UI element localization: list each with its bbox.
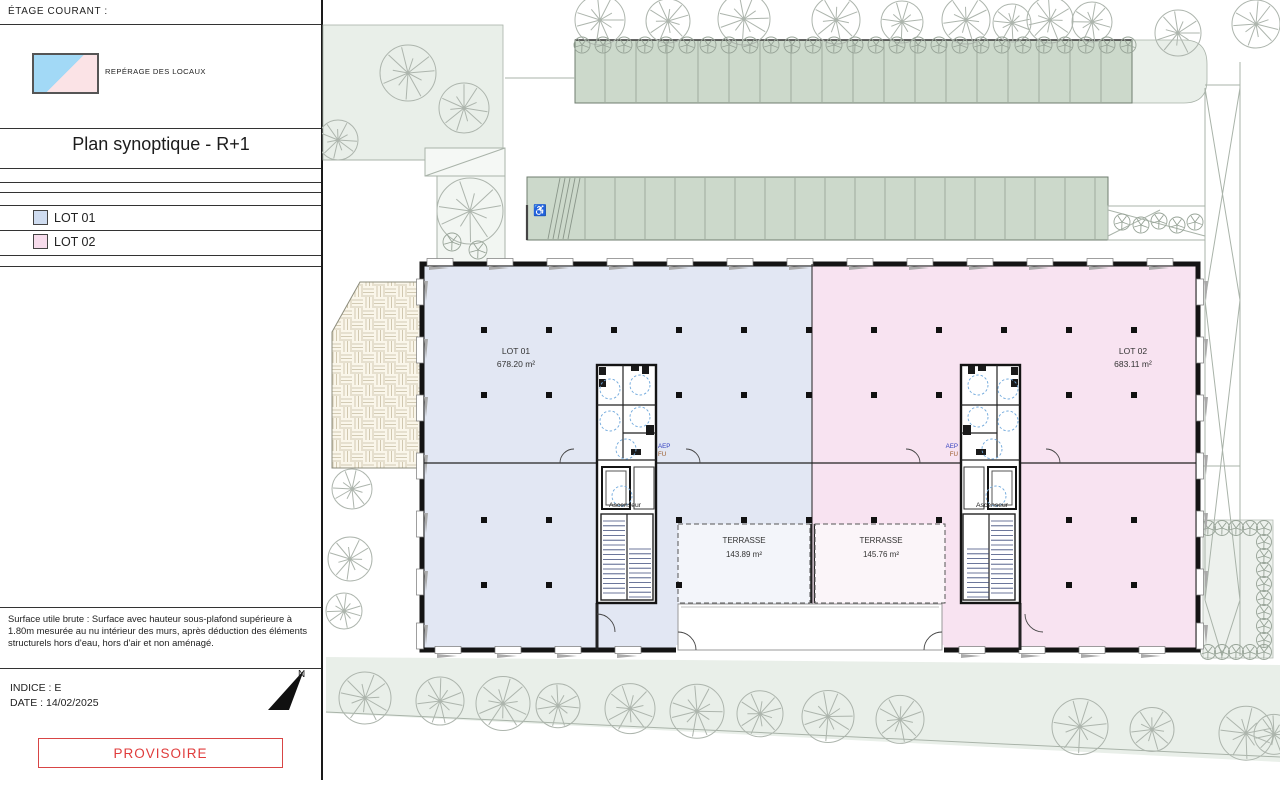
aep-west-label: AEP [658, 443, 670, 450]
divider-line [0, 230, 322, 231]
lot01-legend-label: LOT 01 [54, 211, 95, 225]
floor-plan-drawing: ♿ [322, 0, 1280, 780]
divider-line [0, 266, 322, 267]
date-label: DATE : 14/02/2025 [10, 697, 99, 709]
elevator-east-label: Ascenseur [976, 502, 1009, 509]
lot02-area-label: 683.11 m² [1114, 359, 1152, 369]
building: LOT 01 678.20 m² LOT 02 683.11 m² TERRAS… [417, 259, 1209, 659]
accessible-parking-icon: ♿ [533, 204, 547, 217]
lot01-swatch [33, 210, 48, 225]
terrace01-area-label: 143.89 m² [726, 550, 762, 559]
divider-line [0, 255, 322, 256]
divider-line [0, 607, 322, 608]
divider-line [0, 205, 322, 206]
aep-east-label: AEP [946, 443, 958, 450]
reperage-locaux-label: REPÉRAGE DES LOCAUX [105, 67, 206, 76]
fu-west-label: FU [658, 451, 666, 458]
page-title: Plan synoptique - R+1 [0, 134, 322, 155]
north-arrow-icon: N [262, 664, 310, 714]
lot02-swatch [33, 234, 48, 249]
divider-line [0, 128, 322, 129]
planting-strips: ♿ [527, 40, 1132, 240]
lot02-label: LOT 02 [1119, 346, 1147, 356]
fu-east-label: FU [950, 451, 958, 458]
elevator-west-label: Ascenseur [609, 502, 642, 509]
terrace02-area-label: 145.76 m² [863, 550, 899, 559]
core-east [961, 365, 1020, 603]
surface-note: Surface utile brute : Surface avec haute… [8, 613, 316, 649]
site-plan: ♿ [322, 0, 1280, 780]
core-west [597, 365, 656, 603]
divider-line [0, 182, 322, 183]
lot01-label: LOT 01 [502, 346, 530, 356]
terrace02-label: TERRASSE [859, 536, 902, 545]
etage-courant-label: ÉTAGE COURANT : [8, 6, 108, 17]
lot01-area-label: 678.20 m² [497, 359, 535, 369]
svg-text:N: N [298, 669, 305, 680]
legend-lot02-row: LOT 02 [33, 234, 95, 249]
paved-area [332, 282, 430, 468]
legend-lot01-row: LOT 01 [33, 210, 95, 225]
provisoire-stamp: PROVISOIRE [38, 738, 283, 768]
reperage-locaux-swatch [32, 53, 99, 94]
divider-line [0, 24, 322, 25]
divider-line [0, 168, 322, 169]
divider-line [0, 192, 322, 193]
terrace01-label: TERRASSE [722, 536, 765, 545]
title-block: ÉTAGE COURANT : REPÉRAGE DES LOCAUX Plan… [0, 0, 322, 780]
lot02-legend-label: LOT 02 [54, 235, 95, 249]
indice-label: INDICE : E [10, 682, 61, 694]
